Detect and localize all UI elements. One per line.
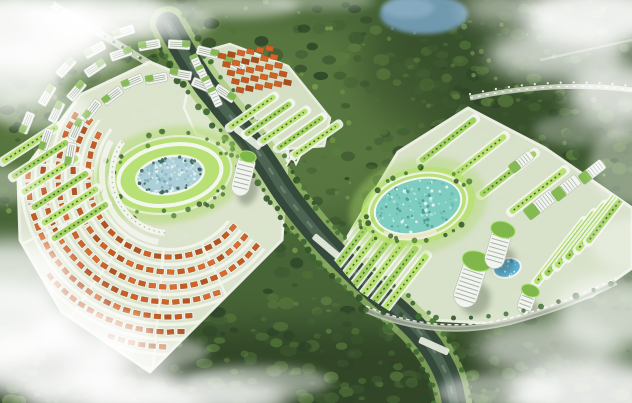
clouds-wisps: [0, 0, 632, 403]
aerial-masterplan-render: [0, 0, 632, 403]
render-canvas: [0, 0, 632, 403]
